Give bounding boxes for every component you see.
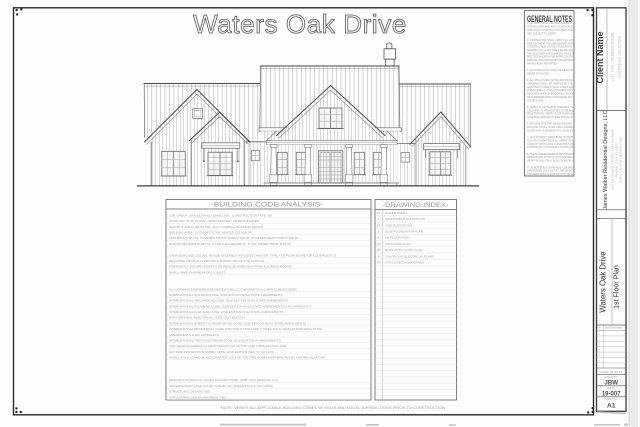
svg-text:NFPA NATIONAL ELECTRICAL CODE,: NFPA NATIONAL ELECTRICAL CODE, 2017 EDIT… xyxy=(169,316,244,320)
svg-text:SIDE ELEVATIONS: SIDE ELEVATIONS xyxy=(385,223,412,227)
svg-text:No.: No. xyxy=(598,326,602,329)
svg-text:RESIDENTIAL DESIGN: JAMES WALK: RESIDENTIAL DESIGN: JAMES WALKER/HOME, (… xyxy=(169,378,278,382)
svg-text:Client Name: Client Name xyxy=(595,31,605,83)
svg-text:LOT ### - SUBDIVISION: LOT ### - SUBDIVISION xyxy=(610,32,615,81)
svg-text:GWALL TITLE 25 AND 26 AND CHAP: GWALL TITLE 25 AND 26 AND CHAPTER 120-3 … xyxy=(169,356,325,360)
svg-text:A1: A1 xyxy=(607,403,616,410)
svg-text:3: 3 xyxy=(378,230,380,234)
svg-text:BUILDING AREA: 2170 SQFT TOTAL: BUILDING AREA: 2170 SQFT TOTAL HEATED 1S… xyxy=(169,231,252,235)
svg-text:USE GROUP: SINGLE FAMILY DWELL: USE GROUP: SINGLE FAMILY DWELLING - CONS… xyxy=(169,214,272,218)
svg-text:ARE SUBJECT TO VERIFY.: ARE SUBJECT TO VERIFY. xyxy=(527,32,557,35)
svg-text:6: 6 xyxy=(378,254,380,258)
svg-text:JOB No:: JOB No: xyxy=(607,387,616,390)
svg-text:THE GEORGIA ENERGY & WEATHERIZ: THE GEORGIA ENERGY & WEATHERIZATION ACT … xyxy=(169,344,287,348)
svg-text:JBW: JBW xyxy=(604,379,618,386)
svg-text:COVER SHEET: COVER SHEET xyxy=(385,211,407,215)
svg-text:DATE: 05.20.19: DATE: 05.20.19 xyxy=(600,370,622,374)
svg-text:NAT FIRE PROTECTION ASSOC. NFP: NAT FIRE PROTECTION ASSOC. NFPA, 2018 ED… xyxy=(169,350,274,354)
svg-text:GARAGE/HOUSE CEILING: HOUSE AS: GARAGE/HOUSE CEILING: HOUSE ASSEMBLY NOT… xyxy=(169,253,336,257)
svg-text:-BUILDING CODE ANALYSIS-: -BUILDING CODE ANALYSIS- xyxy=(211,202,323,209)
svg-text:ROOF/ATTIC ROOF PLAN: ROOF/ATTIC ROOF PLAN xyxy=(385,248,422,252)
svg-text:INTERNATIONAL MECHANICAL CODE,: INTERNATIONAL MECHANICAL CODE, 2018 EDIT… xyxy=(169,299,288,303)
svg-text:INTERNATIONAL ENERGY CONSERVAT: INTERNATIONAL ENERGY CONSERVATION CODE, … xyxy=(169,321,306,325)
svg-text:SNOW/ROOFED LOAD COURT ASSUM (: SNOW/ROOFED LOAD COURT ASSUM (ALL AREAS … xyxy=(169,384,273,388)
svg-text:1: 1 xyxy=(378,217,380,221)
svg-text:INTERNATIONAL PLUMBING CODE, 2: INTERNATIONAL PLUMBING CODE, 2018 EDITIO… xyxy=(169,304,312,308)
svg-text:THESE PLANS.: THESE PLANS. xyxy=(527,99,544,102)
svg-text:CONSTRUCTION CLASS: UNPROTECTE: CONSTRUCTION CLASS: UNPROTECTED / UNSPRI… xyxy=(169,219,260,223)
svg-text:2nd FLOOR PLAN: 2nd FLOOR PLAN xyxy=(385,242,411,246)
svg-text:Waters Oak Drive: Waters Oak Drive xyxy=(598,251,607,312)
svg-text:Date/Description: Date/Description xyxy=(605,326,623,329)
svg-text:07: 07 xyxy=(377,261,381,265)
svg-text:SHEET No:: SHEET No: xyxy=(605,398,618,401)
svg-text:INTERNATIONAL BUILDING CODE, 2: INTERNATIONAL BUILDING CODE, 2018 EDITIO… xyxy=(169,293,283,297)
svg-text:INTERNATIONAL RESIDENTIAL CODE: INTERNATIONAL RESIDENTIAL CODE FOR ONE &… xyxy=(169,327,322,331)
svg-text:INTERNATIONAL FUEL GAS CODE, 2: INTERNATIONAL FUEL GAS CODE, 2018 EDITIO… xyxy=(169,310,283,314)
svg-text:02: 02 xyxy=(377,223,381,227)
svg-text:HEIGHT & AREA LIMITATION: 40 F: HEIGHT & AREA LIMITATION: 40 FT. OVERALL… xyxy=(169,225,264,229)
svg-text:FRONT/REAR ELEVATIONS: FRONT/REAR ELEVATIONS xyxy=(385,217,425,221)
svg-text:SHALL HAVE A MINIMUM OF 5.7 SQ: SHALL HAVE A MINIMUM OF 5.7 SQ FT. xyxy=(169,270,226,274)
svg-text:1st Floor Plan: 1st Floor Plan xyxy=(612,265,620,309)
svg-text:EMERGENCY ESCAPE: EGRESS OR RE: EMERGENCY ESCAPE: EGRESS OR RESCUE WINDO… xyxy=(169,265,292,269)
svg-text:NEVER ESTIMATED.: NEVER ESTIMATED. xyxy=(527,72,550,75)
svg-text:ALL DRAWINGS REFERENCED HEREIN: ALL DRAWINGS REFERENCED HEREIN SHALL CON… xyxy=(169,287,297,291)
svg-text:DRAWN BY:: DRAWN BY: xyxy=(605,376,619,379)
svg-text:ADDRESS GA #####: ADDRESS GA ##### xyxy=(617,35,622,78)
svg-text:1st FLOOR PLAN: 1st FLOOR PLAN xyxy=(385,236,410,240)
svg-text:SLAB FOUNDATION PLAN: SLAB FOUNDATION PLAN xyxy=(385,230,423,234)
svg-text:INTERNATIONAL FIRE CODE PREVEN: INTERNATIONAL FIRE CODE PREVENTION, 2018… xyxy=(169,338,281,342)
svg-text:-DRAWING INDEX-: -DRAWING INDEX- xyxy=(383,202,449,209)
svg-text:STRUCTURAL DESIGN: TBD: STRUCTURAL DESIGN: TBD xyxy=(169,390,211,394)
svg-text:James Walker Residential Desig: James Walker Residential Designs, LLC xyxy=(603,110,609,210)
svg-text:REQUIRED FROM ALL HABITABLE RO: REQUIRED FROM ALL HABITABLE ROOMS ABOVE … xyxy=(169,259,264,263)
svg-text:HAVING BEEN REPORTED.: HAVING BEEN REPORTED. xyxy=(527,62,558,65)
svg-text:UNFINISHED BONUS 387 SF, 2 CAR: UNFINISHED BONUS 387 SF, 2 CAR GARAGE 59… xyxy=(169,242,291,246)
svg-text:STRUCTURAL DESIGN ADDRESS: TBD: STRUCTURAL DESIGN ADDRESS: TBD xyxy=(169,395,227,399)
svg-text:01: 01 xyxy=(377,211,381,215)
svg-text:EMAIL: DESIGNS@EMAIL.COM: EMAIL: DESIGNS@EMAIL.COM xyxy=(618,137,622,183)
svg-text:2970 BONUS 387 SF, COVERED FRO: 2970 BONUS 387 SF, COVERED FRONT PORCH 2… xyxy=(169,236,299,240)
svg-text:4: 4 xyxy=(378,236,380,240)
svg-text:Waters Oak Drive: Waters Oak Drive xyxy=(193,9,407,39)
svg-text:NOTE: VERIFY ALL APPLICABLE BU: NOTE: VERIFY ALL APPLICABLE BUILDING COD… xyxy=(221,405,446,410)
svg-text:2/1st FLOOR ELECTRICAL PLANS: 2/1st FLOOR ELECTRICAL PLANS xyxy=(385,254,434,258)
svg-text:05: 05 xyxy=(377,248,381,252)
svg-text:A2: A2 xyxy=(377,242,381,246)
svg-text:AMENDMENTS & IRC APPENDIX F: AMENDMENTS & IRC APPENDIX F xyxy=(169,333,219,337)
svg-text:CROSS SECTION/DETAILS: CROSS SECTION/DETAILS xyxy=(385,261,424,265)
